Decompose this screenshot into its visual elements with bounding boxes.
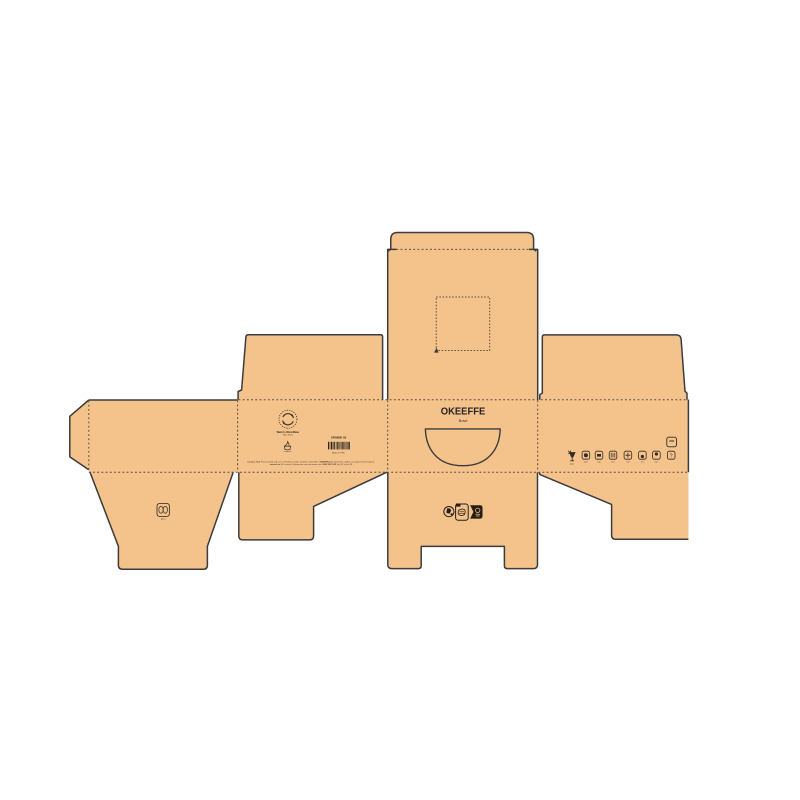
svg-text:Made in PRC: Made in PRC — [332, 452, 345, 454]
svg-text:?: ? — [670, 454, 673, 460]
svg-text:Bowl: Bowl — [459, 418, 468, 423]
svg-text:add: add — [626, 462, 629, 464]
svg-text:After Wash: After Wash — [283, 434, 293, 437]
svg-text:Caution: Hot! Please handle wi: Caution: Hot! Please handle with care. T… — [248, 460, 375, 463]
svg-text:AR0985/ 03: AR0985/ 03 — [331, 436, 347, 440]
svg-text:store: store — [655, 461, 659, 464]
svg-text:glass: glass — [570, 464, 574, 466]
svg-text:Wash In WarmWater: Wash In WarmWater — [277, 431, 300, 434]
svg-text:wipe: wipe — [597, 462, 601, 464]
svg-text:www.ok.co UK contacts. Dishwas: www.ok.co UK contacts. Dishwasher and mi… — [270, 463, 353, 466]
svg-text:dry: dry — [641, 461, 644, 464]
svg-text:OKEEFFE: OKEEFFE — [441, 407, 486, 418]
svg-text:rinse: rinse — [611, 461, 615, 464]
svg-text:glass: glass — [161, 518, 166, 520]
svg-text:warm: warm — [584, 461, 589, 464]
svg-text:compost: compost — [284, 450, 292, 453]
